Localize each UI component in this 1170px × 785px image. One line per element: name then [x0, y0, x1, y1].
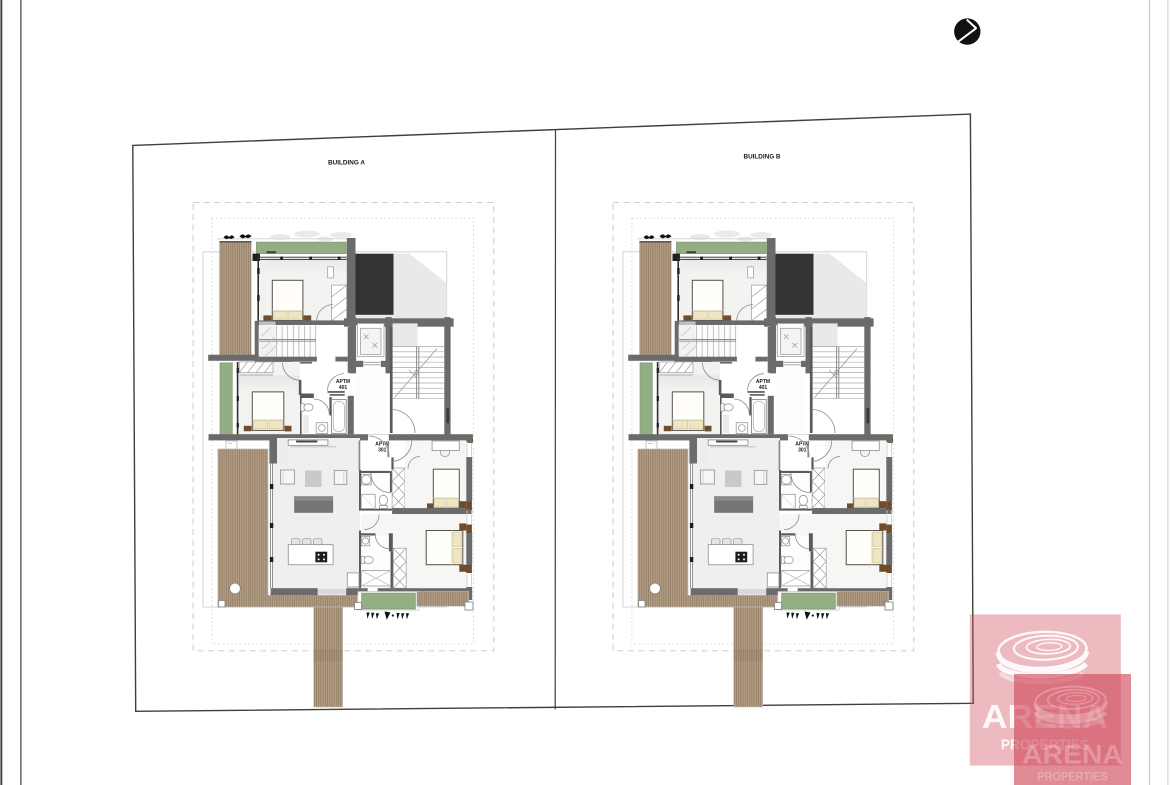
svg-text:301: 301 — [798, 448, 807, 454]
svg-text:301: 301 — [378, 448, 387, 454]
svg-text:401: 401 — [759, 385, 768, 391]
svg-text:BUILDING B: BUILDING B — [744, 154, 781, 161]
svg-text:ARENA: ARENA — [1022, 739, 1123, 769]
svg-text:PROPERTIES: PROPERTIES — [1037, 771, 1108, 784]
svg-text:401: 401 — [339, 385, 348, 391]
svg-text:BUILDING A: BUILDING A — [328, 160, 365, 167]
